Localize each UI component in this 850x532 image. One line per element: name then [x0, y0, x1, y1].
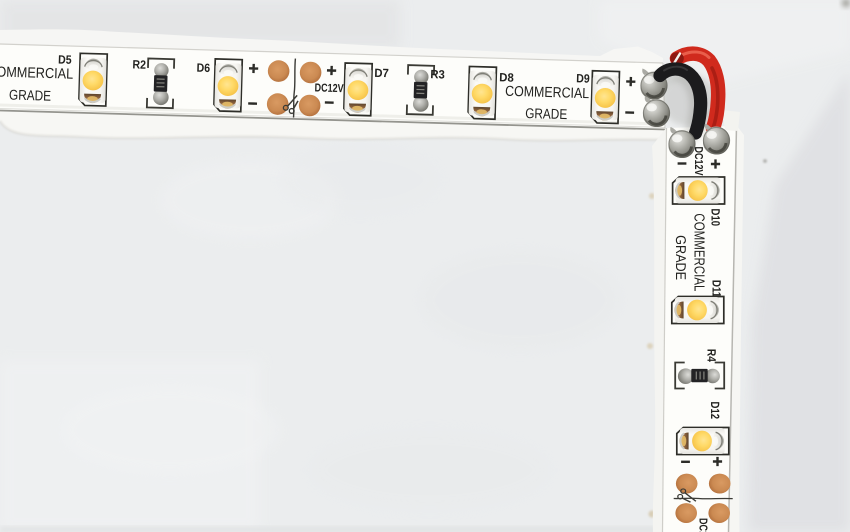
svg-text:R4: R4: [705, 349, 719, 362]
svg-text:D11: D11: [710, 280, 724, 298]
svg-text:COMMERCIAL: COMMERCIAL: [505, 84, 589, 102]
svg-text:GRADE: GRADE: [525, 106, 567, 123]
svg-text:COMMERCIAL: COMMERCIAL: [691, 213, 707, 291]
svg-text:D8: D8: [499, 70, 514, 84]
svg-text:D7: D7: [374, 66, 389, 80]
svg-text:D6: D6: [196, 61, 210, 75]
svg-text:DC12V: DC12V: [697, 518, 709, 532]
svg-text:D10: D10: [709, 209, 723, 227]
svg-text:DC12V: DC12V: [314, 82, 344, 95]
svg-text:R3: R3: [430, 67, 445, 81]
svg-text:D9: D9: [576, 71, 590, 85]
svg-text:D12: D12: [708, 402, 722, 420]
svg-text:COMMERCIAL: COMMERCIAL: [0, 64, 73, 82]
svg-text:DC12V: DC12V: [692, 147, 704, 176]
svg-text:GRADE: GRADE: [9, 87, 51, 104]
svg-text:R2: R2: [132, 57, 146, 71]
svg-text:GRADE: GRADE: [672, 235, 688, 280]
svg-text:D5: D5: [58, 52, 72, 66]
